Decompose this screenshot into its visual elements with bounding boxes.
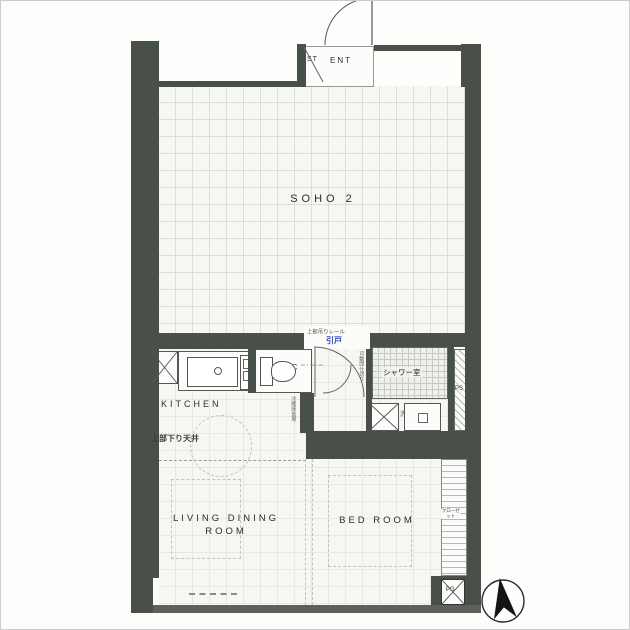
- window-break-marks: [189, 593, 237, 595]
- partition-note-blue: 引戸: [326, 335, 342, 346]
- wc-room: WC: [254, 349, 312, 393]
- hall-left-note: 冷蔵庫置場: [290, 396, 295, 427]
- kitchen-label: KITCHEN: [161, 399, 222, 409]
- bedroom-label: BED ROOM: [321, 515, 433, 526]
- wall-top-left-pillar: [131, 41, 159, 87]
- wall-st-stub: [297, 44, 306, 87]
- entrance-area: ST ENT: [302, 46, 374, 87]
- floor-plan: ST ENT WC シャワー室 PS 洗 PG: [0, 0, 630, 630]
- wall-right-upper: [465, 86, 481, 459]
- partition-note-gray: 上部吊りレール: [307, 327, 345, 335]
- wall-hallway-right: [366, 347, 372, 431]
- kitchen-counter: [178, 351, 253, 391]
- hall-right-note: 可動間仕切り: [358, 351, 363, 402]
- toilet-bowl: [271, 361, 296, 382]
- living-label-line2: ROOM: [151, 526, 301, 537]
- sink-drain: [214, 367, 222, 375]
- soho-room-floor: [159, 86, 467, 333]
- wall-mid-right: [369, 333, 465, 347]
- partition-annotation: 上部吊りレール 引戸: [304, 326, 370, 349]
- wall-counter-wc-stub: [248, 349, 256, 393]
- entrance-label: ENT: [330, 56, 352, 65]
- dropped-ceiling-note: 上部下り天井: [151, 433, 199, 444]
- shower-room-label: シャワー室: [382, 367, 422, 378]
- wall-top-right-line: [374, 45, 463, 51]
- wall-bedroom-top: [306, 431, 481, 459]
- wall-top-right-pillar: [461, 44, 481, 87]
- storage-label: ST: [307, 56, 318, 63]
- closet-label: クローゼット: [441, 509, 461, 519]
- wall-shower-ps-divider: [448, 347, 454, 433]
- wall-top-left-line: [157, 81, 303, 87]
- wall-left-bottom-step: [131, 578, 153, 613]
- wall-below-wc: [300, 393, 314, 433]
- wall-left: [131, 86, 159, 578]
- pg-label: PG: [446, 587, 455, 593]
- wall-mid-left: [159, 333, 304, 349]
- kitchen-table-outline: [190, 415, 252, 477]
- living-label-line1: LIVING DINING: [151, 513, 301, 524]
- wall-bottom-window-line: [153, 605, 481, 613]
- ld-br-partition: [305, 459, 313, 605]
- washer-space: [369, 403, 399, 431]
- north-compass-icon: [477, 571, 531, 629]
- soho-label: SOHO 2: [233, 193, 413, 205]
- pipe-space-label: PS: [455, 386, 463, 392]
- shower-drain: [418, 413, 428, 423]
- kitchen-sink: [187, 357, 238, 387]
